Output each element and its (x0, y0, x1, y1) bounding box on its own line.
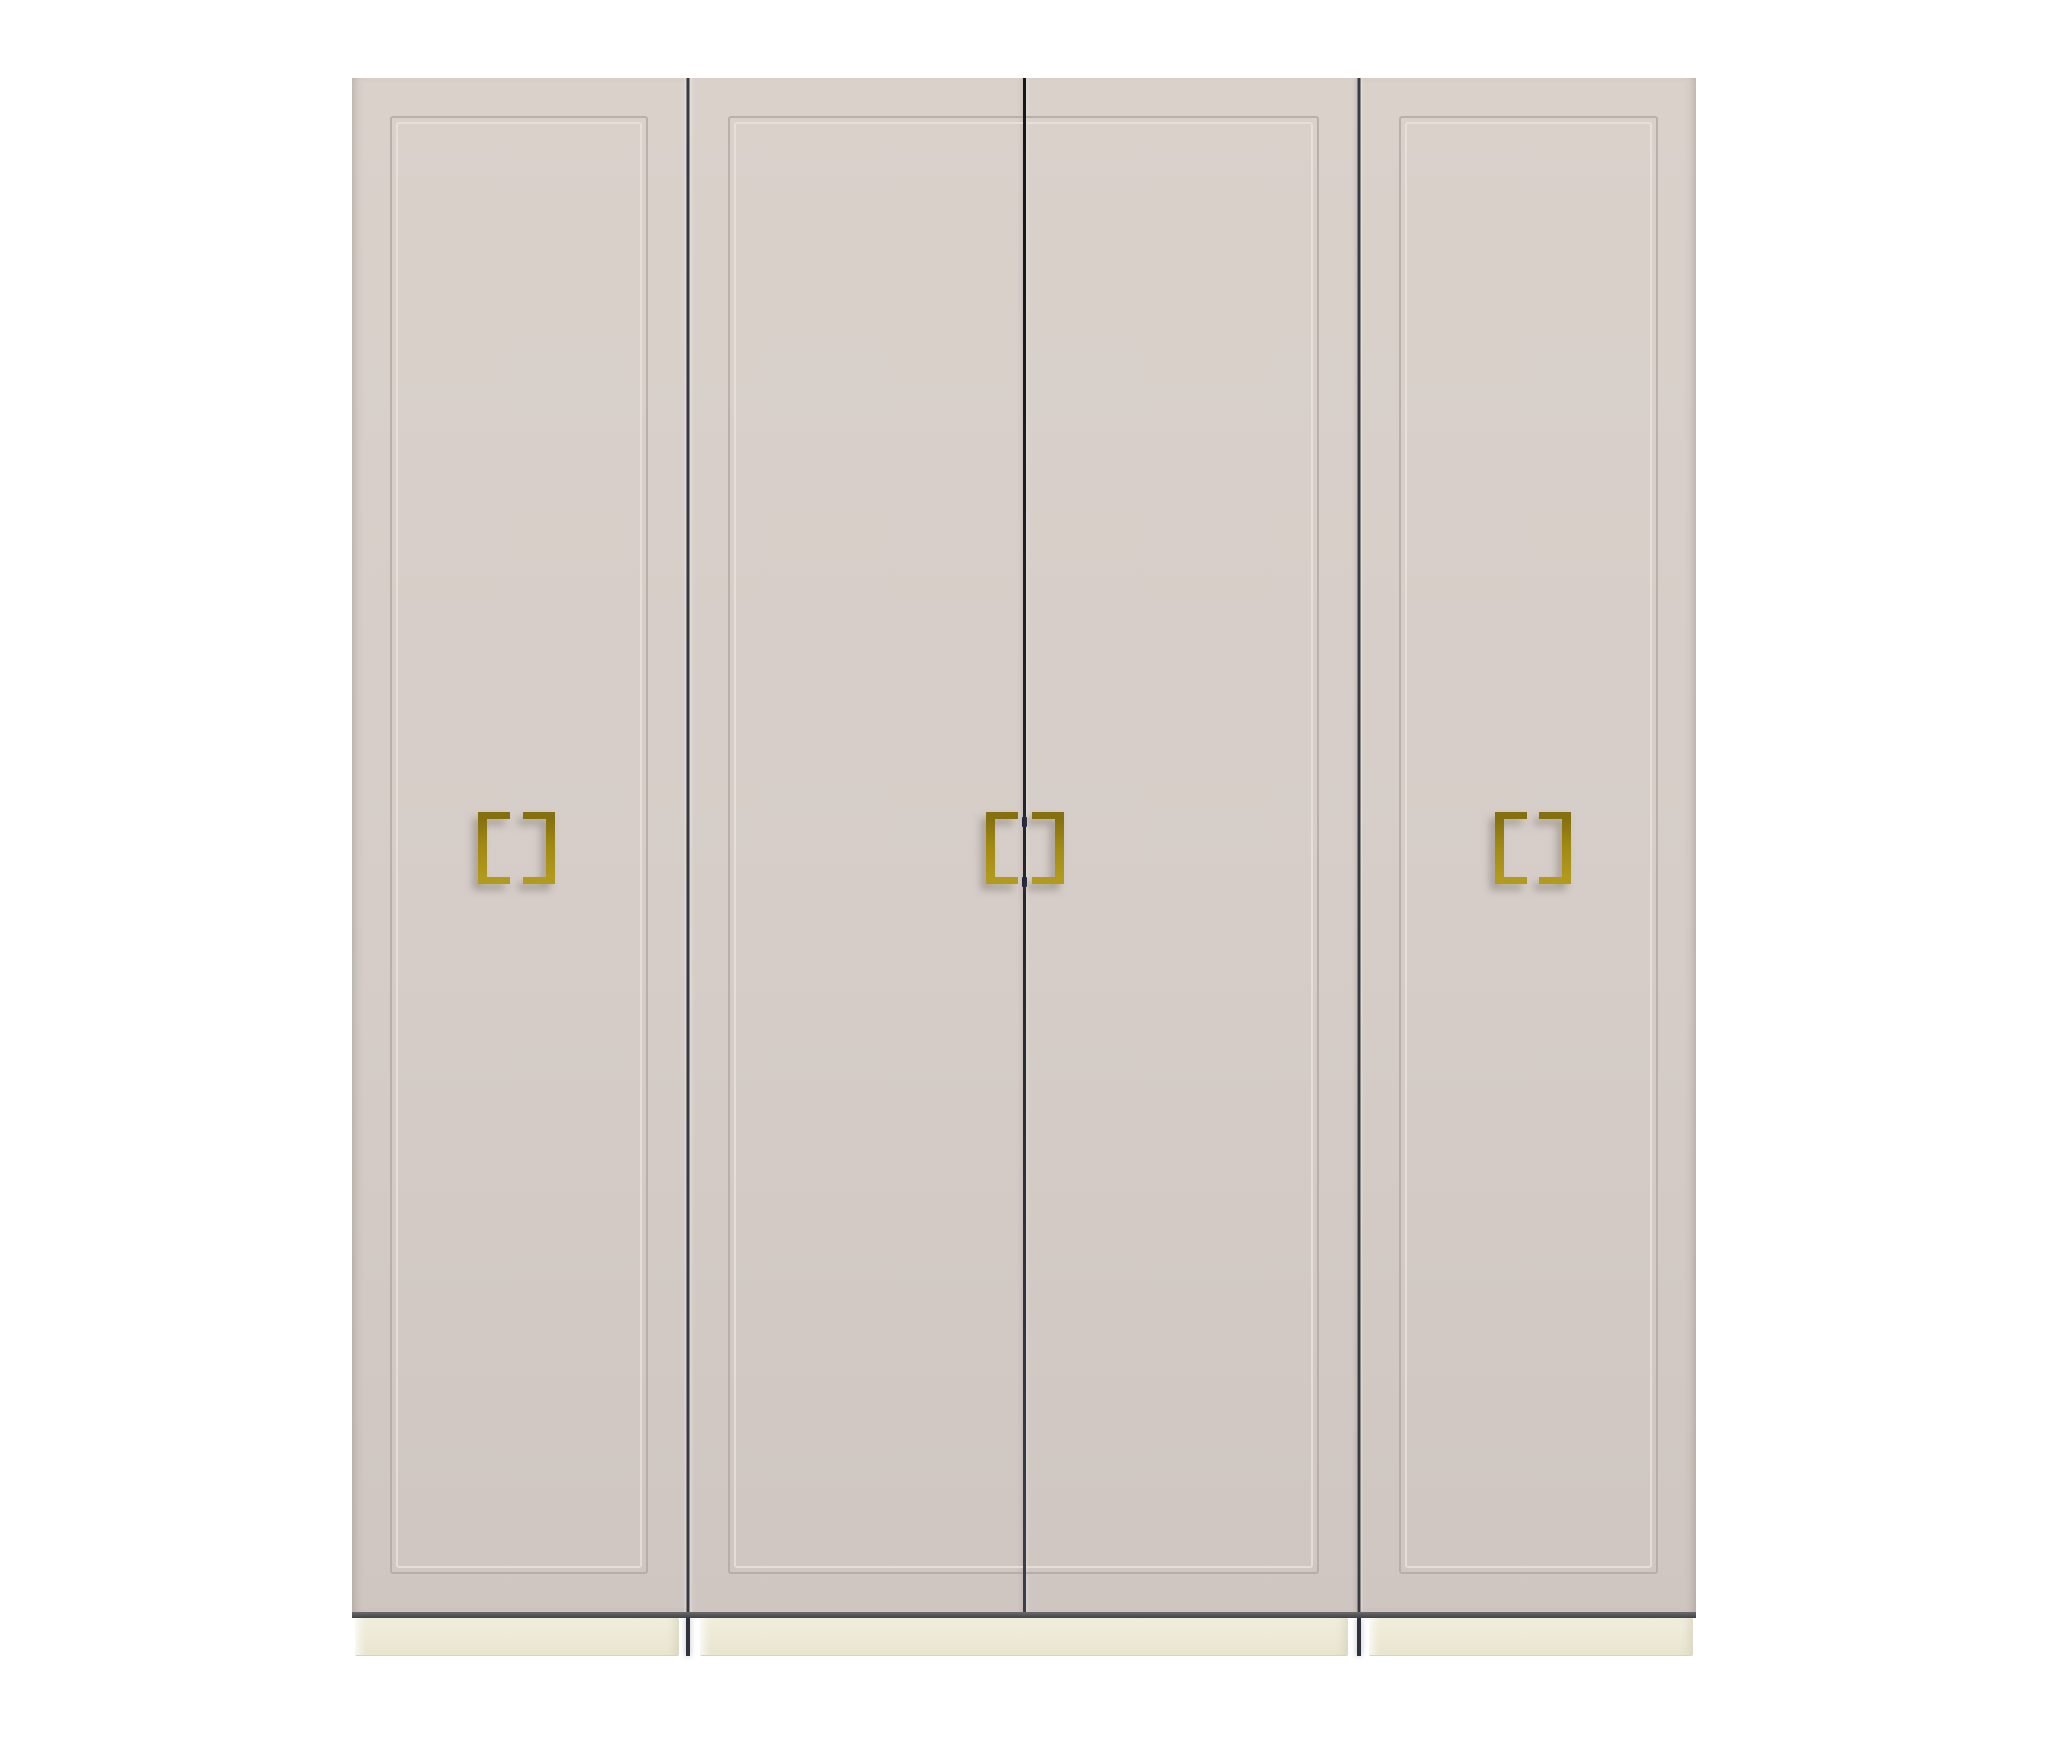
center-gap-shadow-top (1022, 817, 1027, 827)
wardrobe-door-4 (1361, 78, 1696, 1612)
wardrobe-door-3 (1026, 78, 1357, 1612)
door-2-handle-bracket (986, 812, 1018, 884)
door-4-panel-groove (1399, 116, 1658, 1574)
door-3-handle-bracket (1032, 812, 1064, 884)
product-image-background (0, 0, 2048, 1757)
plinth-right-section (1369, 1618, 1693, 1656)
cabinet-seam-left (686, 78, 690, 1612)
plinth-left-section (355, 1618, 679, 1656)
door-1-panel-groove (390, 116, 648, 1574)
plinth-middle-section (700, 1618, 1348, 1656)
wardrobe (352, 78, 1696, 1657)
center-door-gap (1023, 78, 1026, 1612)
cabinet-seam-right (1357, 78, 1361, 1612)
wardrobe-door-1 (352, 78, 686, 1612)
door-4-handle-right-bracket (1539, 812, 1571, 884)
door-1-handle-right-bracket (523, 812, 555, 884)
plinth-seam-left (686, 1618, 690, 1656)
plinth-seam-right (1357, 1618, 1361, 1656)
door-4-handle-left-bracket (1495, 812, 1527, 884)
door-1-handle-left-bracket (478, 812, 510, 884)
center-gap-shadow-bottom (1022, 877, 1027, 887)
wardrobe-door-2 (690, 78, 1023, 1612)
